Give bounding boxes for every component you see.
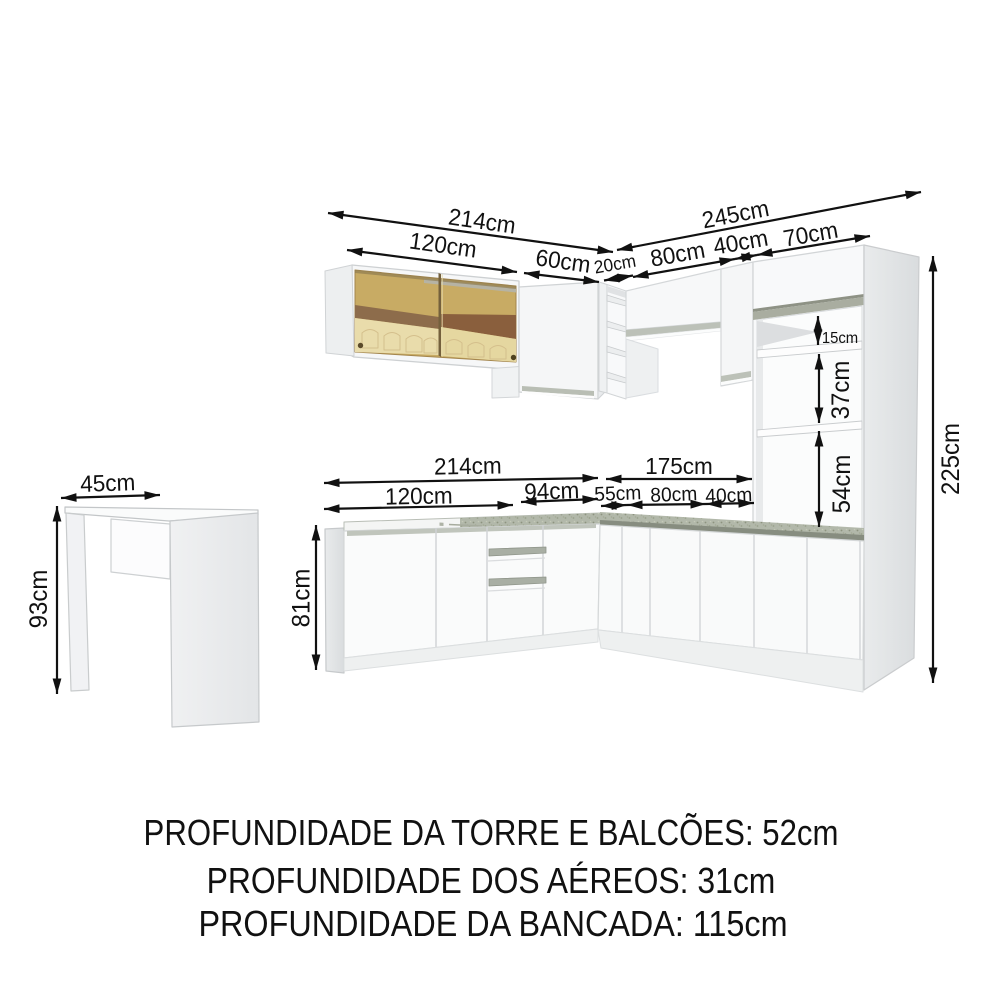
svg-text:PROFUNDIDADE DA TORRE E BALCÕE: PROFUNDIDADE DA TORRE E BALCÕES: 52cm xyxy=(144,813,839,854)
svg-text:45cm: 45cm xyxy=(80,469,136,497)
svg-text:120cm: 120cm xyxy=(385,482,453,510)
svg-text:55cm: 55cm xyxy=(594,482,642,506)
svg-text:15cm: 15cm xyxy=(822,330,858,347)
svg-text:93cm: 93cm xyxy=(26,570,54,629)
svg-text:PROFUNDIDADE DA BANCADA: 115cm: PROFUNDIDADE DA BANCADA: 115cm xyxy=(198,904,787,944)
svg-text:80cm: 80cm xyxy=(650,483,698,507)
svg-text:37cm: 37cm xyxy=(828,361,856,420)
svg-text:175cm: 175cm xyxy=(645,453,713,480)
svg-text:81cm: 81cm xyxy=(288,569,316,628)
svg-text:94cm: 94cm xyxy=(524,477,580,505)
svg-text:40cm: 40cm xyxy=(705,484,753,508)
svg-text:54cm: 54cm xyxy=(829,455,857,514)
svg-text:225cm: 225cm xyxy=(938,423,966,495)
svg-text:PROFUNDIDADE DOS AÉREOS: 31cm: PROFUNDIDADE DOS AÉREOS: 31cm xyxy=(207,861,776,901)
svg-text:214cm: 214cm xyxy=(434,452,502,480)
